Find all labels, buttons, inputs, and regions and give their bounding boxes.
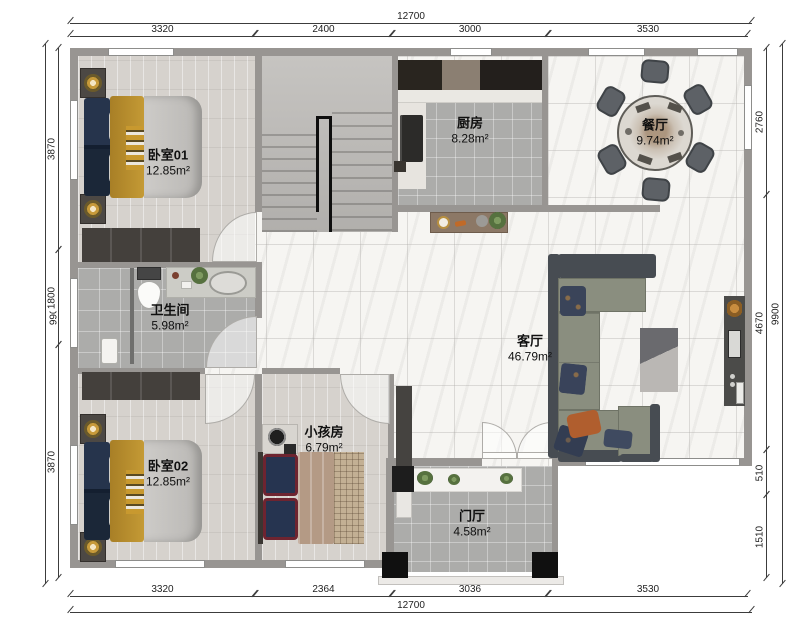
wardrobe xyxy=(82,372,200,400)
dim-left-seg-1: 3870 xyxy=(58,48,59,250)
window-bedroom02-bottom xyxy=(115,560,205,568)
room-area: 9.74m² xyxy=(636,134,673,149)
toilet-tank xyxy=(137,267,161,280)
kitchen-appliance xyxy=(394,161,406,172)
room-label-entry: 门厅 4.58m² xyxy=(453,508,490,539)
bed-headboard-pillows xyxy=(84,442,110,540)
kids-pillow xyxy=(263,454,298,496)
french-door-leaf-right xyxy=(517,452,552,459)
dim-right-seg-2: 4670 xyxy=(766,195,767,450)
dim-left-overall: 9900 xyxy=(45,44,46,584)
dim-bottom-overall: 12700 xyxy=(70,612,752,613)
room-label-bedroom-01: 卧室01 12.85m² xyxy=(146,147,190,178)
dim-label: 3320 xyxy=(149,584,175,595)
stair-steps-right xyxy=(332,112,392,232)
room-label-kids-room: 小孩房 6.79m² xyxy=(304,424,343,455)
tv-decor-plant xyxy=(727,300,742,317)
room-name: 餐厅 xyxy=(636,117,673,133)
dim-top-seg-2: 2400 xyxy=(255,36,392,37)
window-dining-right xyxy=(744,85,752,150)
entry-column xyxy=(382,552,408,578)
hall-cabinet xyxy=(396,386,412,472)
lamp xyxy=(84,420,102,438)
decor-plate xyxy=(437,216,450,229)
dim-label: 3530 xyxy=(635,584,661,595)
entry-column xyxy=(532,552,558,578)
throw-pillow xyxy=(559,363,588,396)
dim-right-seg-1: 2760 xyxy=(766,48,767,195)
stair-steps-left xyxy=(262,134,317,232)
room-label-bathroom: 卫生间 5.98m² xyxy=(150,302,189,333)
wall-bathroom-right-upper xyxy=(255,262,262,318)
dim-bottom-seg-3: 3036 xyxy=(392,596,548,597)
room-label-living: 客厅 46.79m² xyxy=(508,333,552,364)
dim-right-overall: 9900 xyxy=(782,44,783,584)
dim-label: 3320 xyxy=(149,24,175,35)
dim-label: 1510 xyxy=(755,523,766,549)
range-hood xyxy=(442,60,480,90)
throw-pillow xyxy=(560,286,586,316)
kids-pillow xyxy=(263,498,298,540)
window-dining-top-1 xyxy=(588,48,645,56)
kitchen-cabinet xyxy=(398,60,442,90)
vanity-item xyxy=(181,281,192,289)
stair-rail xyxy=(316,116,319,212)
dim-label: 510 xyxy=(755,462,766,483)
dim-label: 2760 xyxy=(755,108,766,134)
room-label-bedroom-02: 卧室02 12.85m² xyxy=(146,458,190,489)
dim-label: 3036 xyxy=(457,584,483,595)
window-bedroom02-left xyxy=(70,445,78,525)
dim-bottom-seg-4: 3530 xyxy=(548,596,748,597)
window-kids-bottom xyxy=(285,560,365,568)
fridge xyxy=(400,115,423,162)
stair-rail xyxy=(329,116,332,232)
dining-chair xyxy=(640,59,670,84)
sofa-back xyxy=(558,254,656,278)
plant xyxy=(417,471,433,485)
wall-kitchen-bottom xyxy=(392,205,548,212)
dim-label: 3000 xyxy=(457,24,483,35)
bed-striped-throw xyxy=(126,126,146,170)
kitchen-counter xyxy=(398,90,542,103)
wall-dining-stub xyxy=(548,205,660,212)
kids-bed-plaid-blanket xyxy=(334,452,364,544)
room-label-dining: 餐厅 9.74m² xyxy=(636,117,673,148)
window-bathroom-left xyxy=(70,278,78,348)
wall-kids-top xyxy=(262,368,340,374)
dim-label: 9900 xyxy=(771,301,782,327)
bed-headboard-pillows xyxy=(84,98,110,196)
room-name: 厨房 xyxy=(451,115,488,131)
speaker xyxy=(736,382,744,404)
room-name: 客厅 xyxy=(508,333,552,349)
room-name: 门厅 xyxy=(453,508,490,524)
shower-fixture xyxy=(101,338,118,364)
bed-striped-throw xyxy=(126,470,146,514)
dim-label: 2364 xyxy=(310,584,336,595)
room-area: 46.79m² xyxy=(508,350,552,365)
dim-bottom-seg-2: 2364 xyxy=(255,596,392,597)
window-dining-top-2 xyxy=(697,48,738,56)
tv-knob xyxy=(730,382,735,387)
room-label-kitchen: 厨房 8.28m² xyxy=(451,115,488,146)
wall-kitchen-dining xyxy=(542,56,548,205)
dim-label: 3870 xyxy=(47,136,58,162)
dim-top-seg-4: 3530 xyxy=(548,36,748,37)
dim-label: 4670 xyxy=(755,309,766,335)
floor-plan-canvas: 12700 3320 2400 3000 3530 3320 2364 3036… xyxy=(0,0,800,643)
plant xyxy=(448,474,460,485)
room-area: 4.58m² xyxy=(453,525,490,540)
dim-left-seg-2: 1800 xyxy=(58,250,59,345)
sink xyxy=(209,271,247,295)
tv xyxy=(728,330,741,358)
window-bedroom01-left xyxy=(70,100,78,180)
shower-divider xyxy=(130,268,134,364)
dim-right-seg-4: 1510 xyxy=(766,495,767,578)
armchair-edge xyxy=(620,454,654,462)
window-kitchen-top xyxy=(450,48,492,56)
plant xyxy=(500,473,513,484)
room-name: 卧室01 xyxy=(146,147,190,163)
dim-top-seg-3: 3000 xyxy=(392,36,548,37)
dim-left-seg-3: 3870 xyxy=(58,345,59,578)
sofa-seats xyxy=(558,312,600,410)
vanity-item xyxy=(172,272,179,279)
lamp xyxy=(84,200,102,218)
dim-bottom-seg-1: 3320 xyxy=(70,596,255,597)
kitchen-cabinet xyxy=(480,60,542,90)
room-area: 12.85m² xyxy=(146,164,190,179)
place-setting xyxy=(678,130,684,136)
rug xyxy=(640,328,678,392)
dining-chair xyxy=(641,177,671,202)
window-bedroom01-top xyxy=(108,48,174,56)
tv-knob xyxy=(730,374,735,379)
room-area: 8.28m² xyxy=(451,132,488,147)
throw-pillow xyxy=(603,429,633,450)
room-area: 5.98m² xyxy=(150,319,189,334)
plant xyxy=(191,267,208,284)
dim-top-seg-1: 3320 xyxy=(70,36,255,37)
kids-bed-duvet xyxy=(298,452,334,544)
dim-label: 3870 xyxy=(47,448,58,474)
room-name: 卫生间 xyxy=(150,302,189,318)
bed-duvet xyxy=(144,440,202,542)
shoe-cabinet xyxy=(392,466,414,492)
plant xyxy=(489,212,506,229)
wall-bedroom01-stairs xyxy=(255,56,262,212)
dim-label: 1800 xyxy=(47,284,58,310)
decor-bowl xyxy=(476,215,488,227)
dim-label: 3530 xyxy=(635,24,661,35)
french-door-leaf-left xyxy=(482,452,517,459)
room-area: 12.85m² xyxy=(146,475,190,490)
dim-right-seg-3: 510 xyxy=(766,450,767,495)
room-name: 卧室02 xyxy=(146,458,190,474)
wardrobe xyxy=(82,228,200,262)
lamp xyxy=(84,538,102,556)
place-setting xyxy=(625,128,632,135)
room-area: 6.79m² xyxy=(304,441,343,456)
dim-label: 2400 xyxy=(310,24,336,35)
dim-label: 12700 xyxy=(395,11,427,22)
dim-label: 12700 xyxy=(395,600,427,611)
lamp xyxy=(84,74,102,92)
room-name: 小孩房 xyxy=(304,424,343,440)
